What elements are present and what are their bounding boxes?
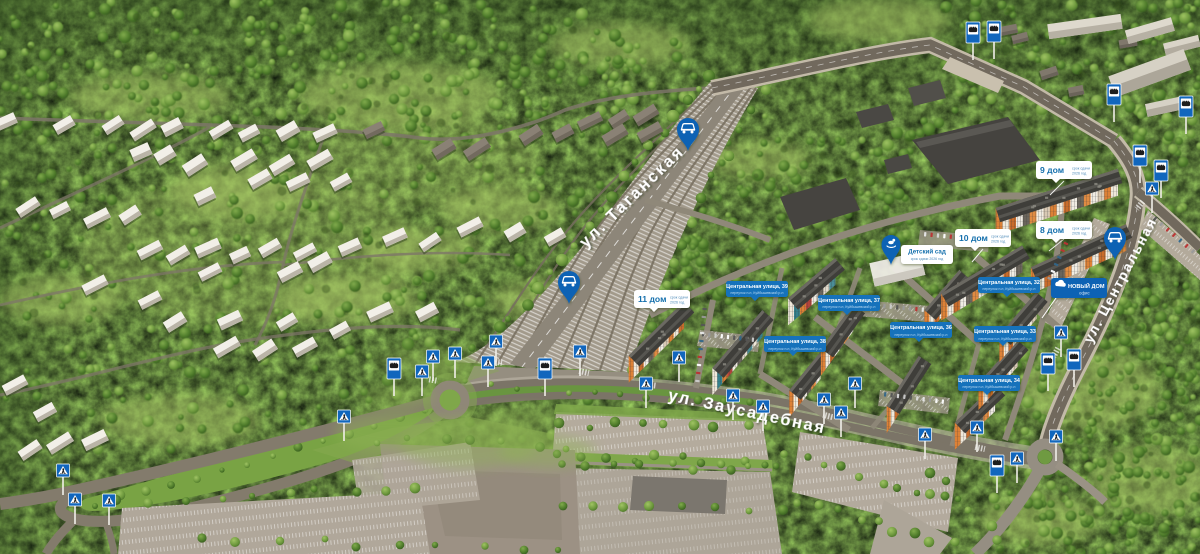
svg-text:переулок н-п, Куйбышевский р-н: переулок н-п, Куйбышевский р-н — [983, 287, 1036, 291]
svg-text:переулок н-п, Куйбышевский р-н: переулок н-п, Куйбышевский р-н — [731, 291, 784, 295]
svg-text:переулок н-п, Куйбышевский р-н: переулок н-п, Куйбышевский р-н — [823, 305, 876, 309]
svg-text:срок сдачи: срок сдачи — [1072, 167, 1090, 171]
svg-text:2026 год: 2026 год — [670, 301, 685, 305]
svg-text:9 дом: 9 дом — [1040, 165, 1064, 175]
svg-text:переулок н-п, Куйбышевский р-н: переулок н-п, Куйбышевский р-н — [895, 333, 948, 337]
svg-text:Центральная улица, 36: Центральная улица, 36 — [890, 325, 952, 331]
svg-text:переулок н-п, Куйбышевский р-н: переулок н-п, Куйбышевский р-н — [769, 347, 822, 351]
svg-text:срок сдачи: срок сдачи — [991, 235, 1009, 239]
svg-text:Центральная улица, 38: Центральная улица, 38 — [764, 339, 826, 345]
svg-text:офис: офис — [1079, 291, 1091, 296]
svg-text:переулок н-п, Куйбышевский р-н: переулок н-п, Куйбышевский р-н — [963, 385, 1016, 389]
svg-text:2026 год: 2026 год — [991, 240, 1006, 244]
svg-text:2026 год: 2026 год — [1072, 232, 1087, 236]
svg-text:Центральная улица, 37: Центральная улица, 37 — [818, 298, 880, 304]
svg-text:2026 год: 2026 год — [1072, 172, 1087, 176]
svg-text:8 дом: 8 дом — [1040, 225, 1064, 235]
svg-text:10 дом: 10 дом — [959, 233, 988, 243]
svg-text:Центральная улица, 33: Центральная улица, 33 — [974, 329, 1036, 335]
svg-text:Центральная улица, 39: Центральная улица, 39 — [726, 284, 788, 290]
svg-text:переулок н-п, Куйбышевский р-н: переулок н-п, Куйбышевский р-н — [979, 337, 1032, 341]
svg-text:Центральная улица, 34: Центральная улица, 34 — [958, 378, 1020, 384]
svg-text:НОВЫЙ ДОМ: НОВЫЙ ДОМ — [1068, 282, 1105, 290]
svg-text:11 дом: 11 дом — [638, 294, 666, 304]
svg-text:срок сдачи: срок сдачи — [670, 296, 688, 300]
svg-text:срок сдачи: срок сдачи — [1072, 227, 1090, 231]
svg-text:Центральная улица, 32: Центральная улица, 32 — [978, 280, 1040, 286]
svg-text:Детский сад: Детский сад — [908, 249, 946, 256]
svg-text:срок сдачи 2026 год: срок сдачи 2026 год — [911, 257, 943, 261]
